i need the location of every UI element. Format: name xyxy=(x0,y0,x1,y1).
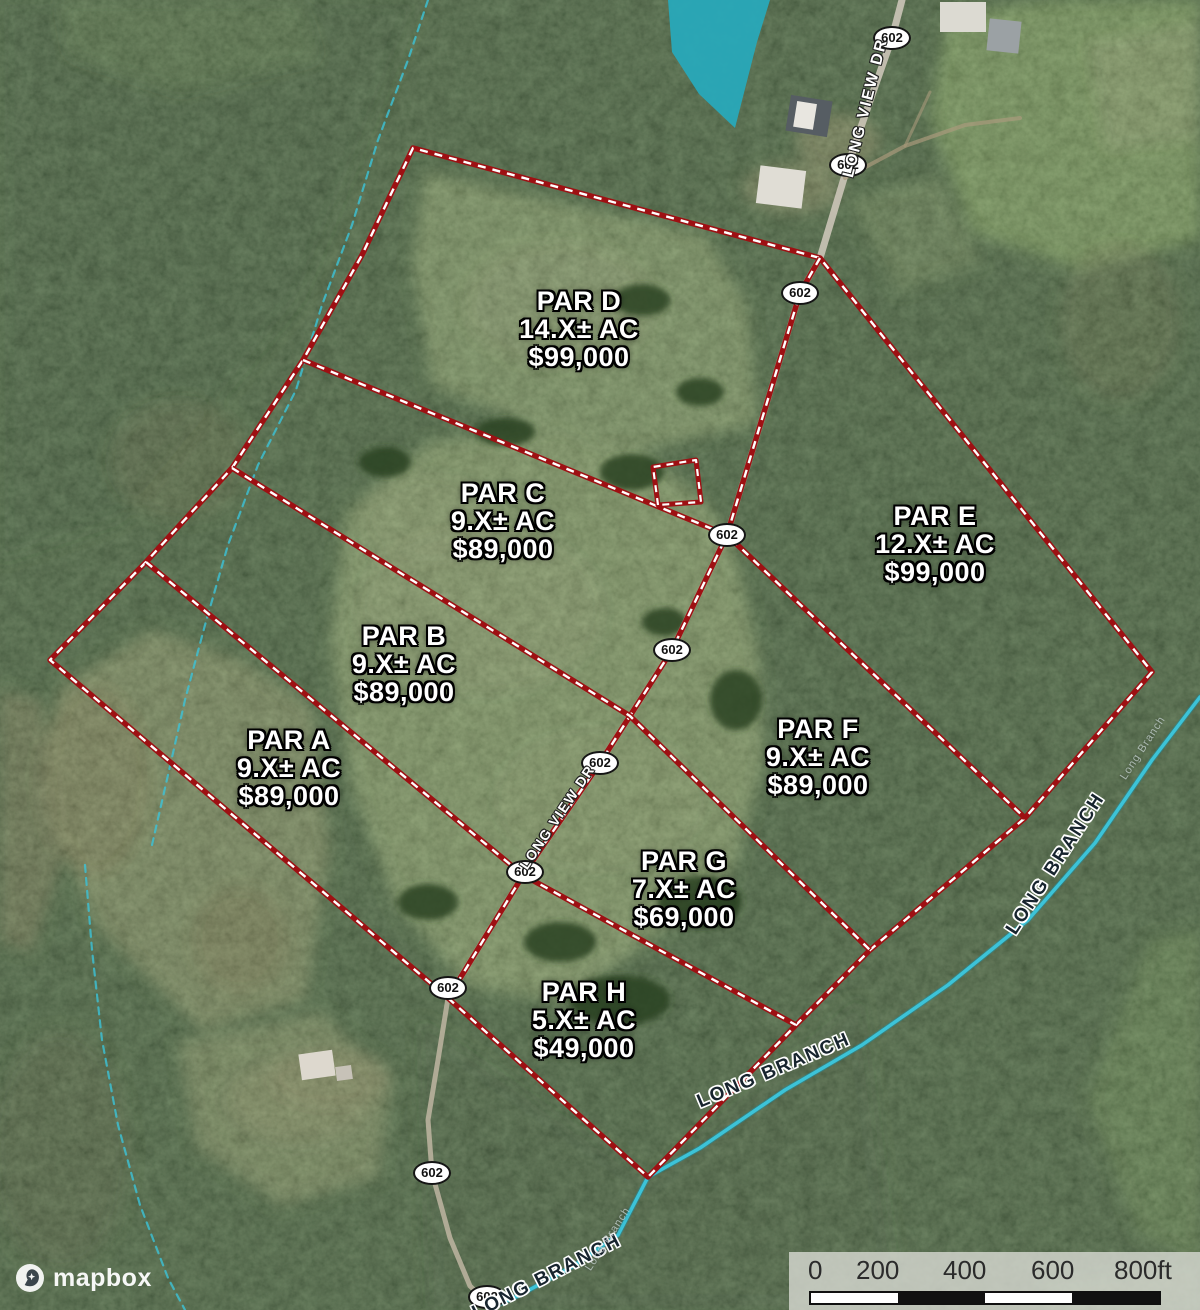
mapbox-wordmark: mapbox xyxy=(53,1264,152,1293)
route-602-shield: 602 xyxy=(781,281,819,305)
scale-tick: 800ft xyxy=(1114,1255,1172,1286)
route-602-shield: 602 xyxy=(708,523,746,547)
route-602-shield: 602 xyxy=(829,153,867,177)
route-602-shield: 602 xyxy=(506,860,544,884)
scale-bar: 0 200 400 600 800ft xyxy=(789,1252,1200,1310)
scale-bar-segments xyxy=(809,1291,1161,1305)
scale-tick: 200 xyxy=(856,1255,899,1286)
scale-tick: 400 xyxy=(943,1255,986,1286)
route-602-shield: 602 xyxy=(581,751,619,775)
scale-tick: 600 xyxy=(1031,1255,1074,1286)
map-canvas[interactable]: 602 602 602 602 602 602 602 602 602 602 … xyxy=(0,0,1200,1310)
route-602-shield: 602 xyxy=(429,976,467,1000)
route-602-shield: 602 xyxy=(653,638,691,662)
mapbox-logo[interactable]: mapbox xyxy=(14,1262,152,1294)
route-602-shield: 602 xyxy=(873,26,911,50)
satellite-imagery xyxy=(0,0,1200,1310)
scale-tick: 0 xyxy=(808,1255,822,1286)
route-602-shield: 602 xyxy=(413,1161,451,1185)
mapbox-icon xyxy=(14,1262,46,1294)
route-602-shield: 602 xyxy=(468,1285,506,1309)
